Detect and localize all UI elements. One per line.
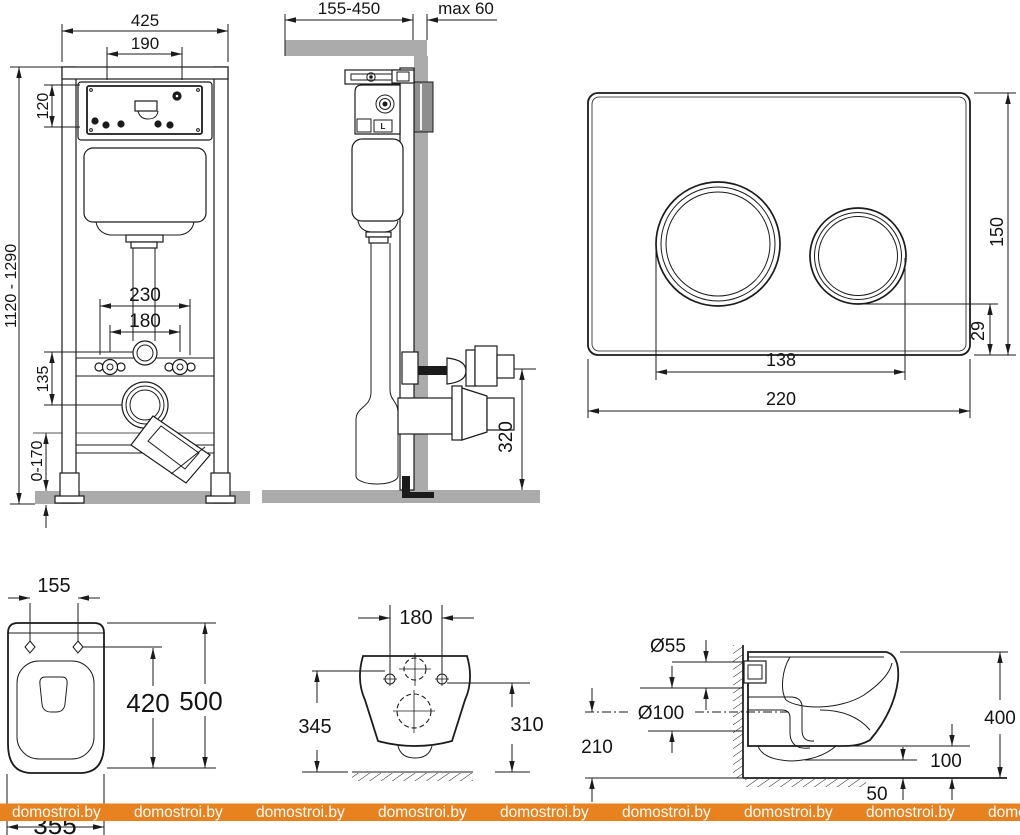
dim-gap-label: 50 <box>866 784 887 805</box>
dim-frame-width-label: 425 <box>131 11 159 30</box>
flush-valve-unit: L <box>355 85 400 134</box>
dim-hole-spacing-label: 155 <box>37 575 70 597</box>
valve-label: L <box>381 122 386 131</box>
p-trap <box>356 390 398 484</box>
frame-left-rail <box>62 67 76 503</box>
technical-drawing-page: 425 190 1120 - 1290 120 230 180 135 0-17… <box>0 0 1020 835</box>
flush-plate <box>588 93 970 355</box>
bowl-top-view: 155 420 500 355 <box>7 575 223 835</box>
dim-buttons-span-label: 138 <box>766 350 796 370</box>
dim-anchor-spacing-label: 230 <box>129 285 161 306</box>
flush-bend-icon <box>135 101 157 111</box>
frame-top-bar <box>62 67 228 79</box>
watermark-strip: domostroi.by domostroi.by domostroi.by d… <box>0 804 1020 822</box>
floor-hatch <box>745 779 866 787</box>
watermark-text: domostroi.by <box>988 804 1020 821</box>
cistern-side <box>352 139 403 484</box>
frame-front-view: 425 190 1120 - 1290 120 230 180 135 0-17… <box>3 11 250 528</box>
dim-inlet-diameter-label: Ø55 <box>650 636 686 657</box>
bowl-side-view: Ø55 Ø100 210 400 100 50 <box>581 636 1016 805</box>
dim-outlet-diameter-label: Ø100 <box>638 703 684 724</box>
dim-height-right-label: 310 <box>510 714 543 736</box>
access-panel <box>78 82 212 140</box>
dim-depth-to-holes-label: 420 <box>126 688 169 718</box>
bowl-bottom-bulge <box>758 746 836 761</box>
dim-drain-drop-label: 135 <box>35 366 52 393</box>
watermark-text: domostroi.by <box>866 804 955 821</box>
wall-hatch <box>733 645 743 778</box>
wall-bracket <box>345 70 414 84</box>
bowl-rear-view: 180 345 310 <box>298 605 543 781</box>
dim-panel-width-label: 190 <box>131 34 159 53</box>
toilet-installation-diagram: 425 190 1120 - 1290 120 230 180 135 0-17… <box>0 0 1020 835</box>
flush-shaft <box>412 82 433 132</box>
drain-bump <box>398 746 432 758</box>
watermark-text: domostroi.by <box>256 804 345 821</box>
dim-plate-width-label: 220 <box>766 389 796 409</box>
watermark-text: domostroi.by <box>134 804 223 821</box>
watermark-text: domostroi.by <box>744 804 833 821</box>
dim-total-height-label: 400 <box>984 708 1016 729</box>
watermark-text: domostroi.by <box>12 804 101 821</box>
frame-right-rail <box>214 67 228 503</box>
watermark-text: domostroi.by <box>500 804 589 821</box>
watermark-text: domostroi.by <box>622 804 711 821</box>
ground-hatch <box>352 773 473 781</box>
dim-clearance-label: 100 <box>930 751 962 772</box>
dim-drain-height-label: 320 <box>496 421 517 453</box>
dim-depth-range-label: 155-450 <box>318 0 380 18</box>
bowl-profile <box>744 652 898 761</box>
floor-slab <box>262 490 540 503</box>
drain-outlet <box>122 382 210 483</box>
flush-plate-view: 150 29 138 220 <box>588 93 1016 418</box>
dim-bolt-spacing-label: 180 <box>129 311 161 332</box>
watermark-text: domostroi.by <box>378 804 467 821</box>
dim-facing-max-label: max 60 <box>438 0 494 18</box>
dim-depth-label: 500 <box>179 686 222 716</box>
dim-outlet-axis-height-label: 210 <box>581 737 613 758</box>
dim-rear-bolt-spacing-label: 180 <box>399 607 432 629</box>
dim-frame-height-label: 1120 - 1290 <box>3 244 20 328</box>
frame-side-view: L <box>262 0 540 503</box>
dim-leg-range-label: 0-170 <box>29 440 46 481</box>
ceiling-slab <box>285 40 427 56</box>
inlet-spigot <box>744 661 766 683</box>
dim-plate-height-label: 150 <box>987 217 1007 247</box>
dim-panel-height-label: 120 <box>35 93 52 120</box>
dim-height-left-label: 345 <box>298 716 331 738</box>
dim-button-offset-label: 29 <box>968 321 988 341</box>
